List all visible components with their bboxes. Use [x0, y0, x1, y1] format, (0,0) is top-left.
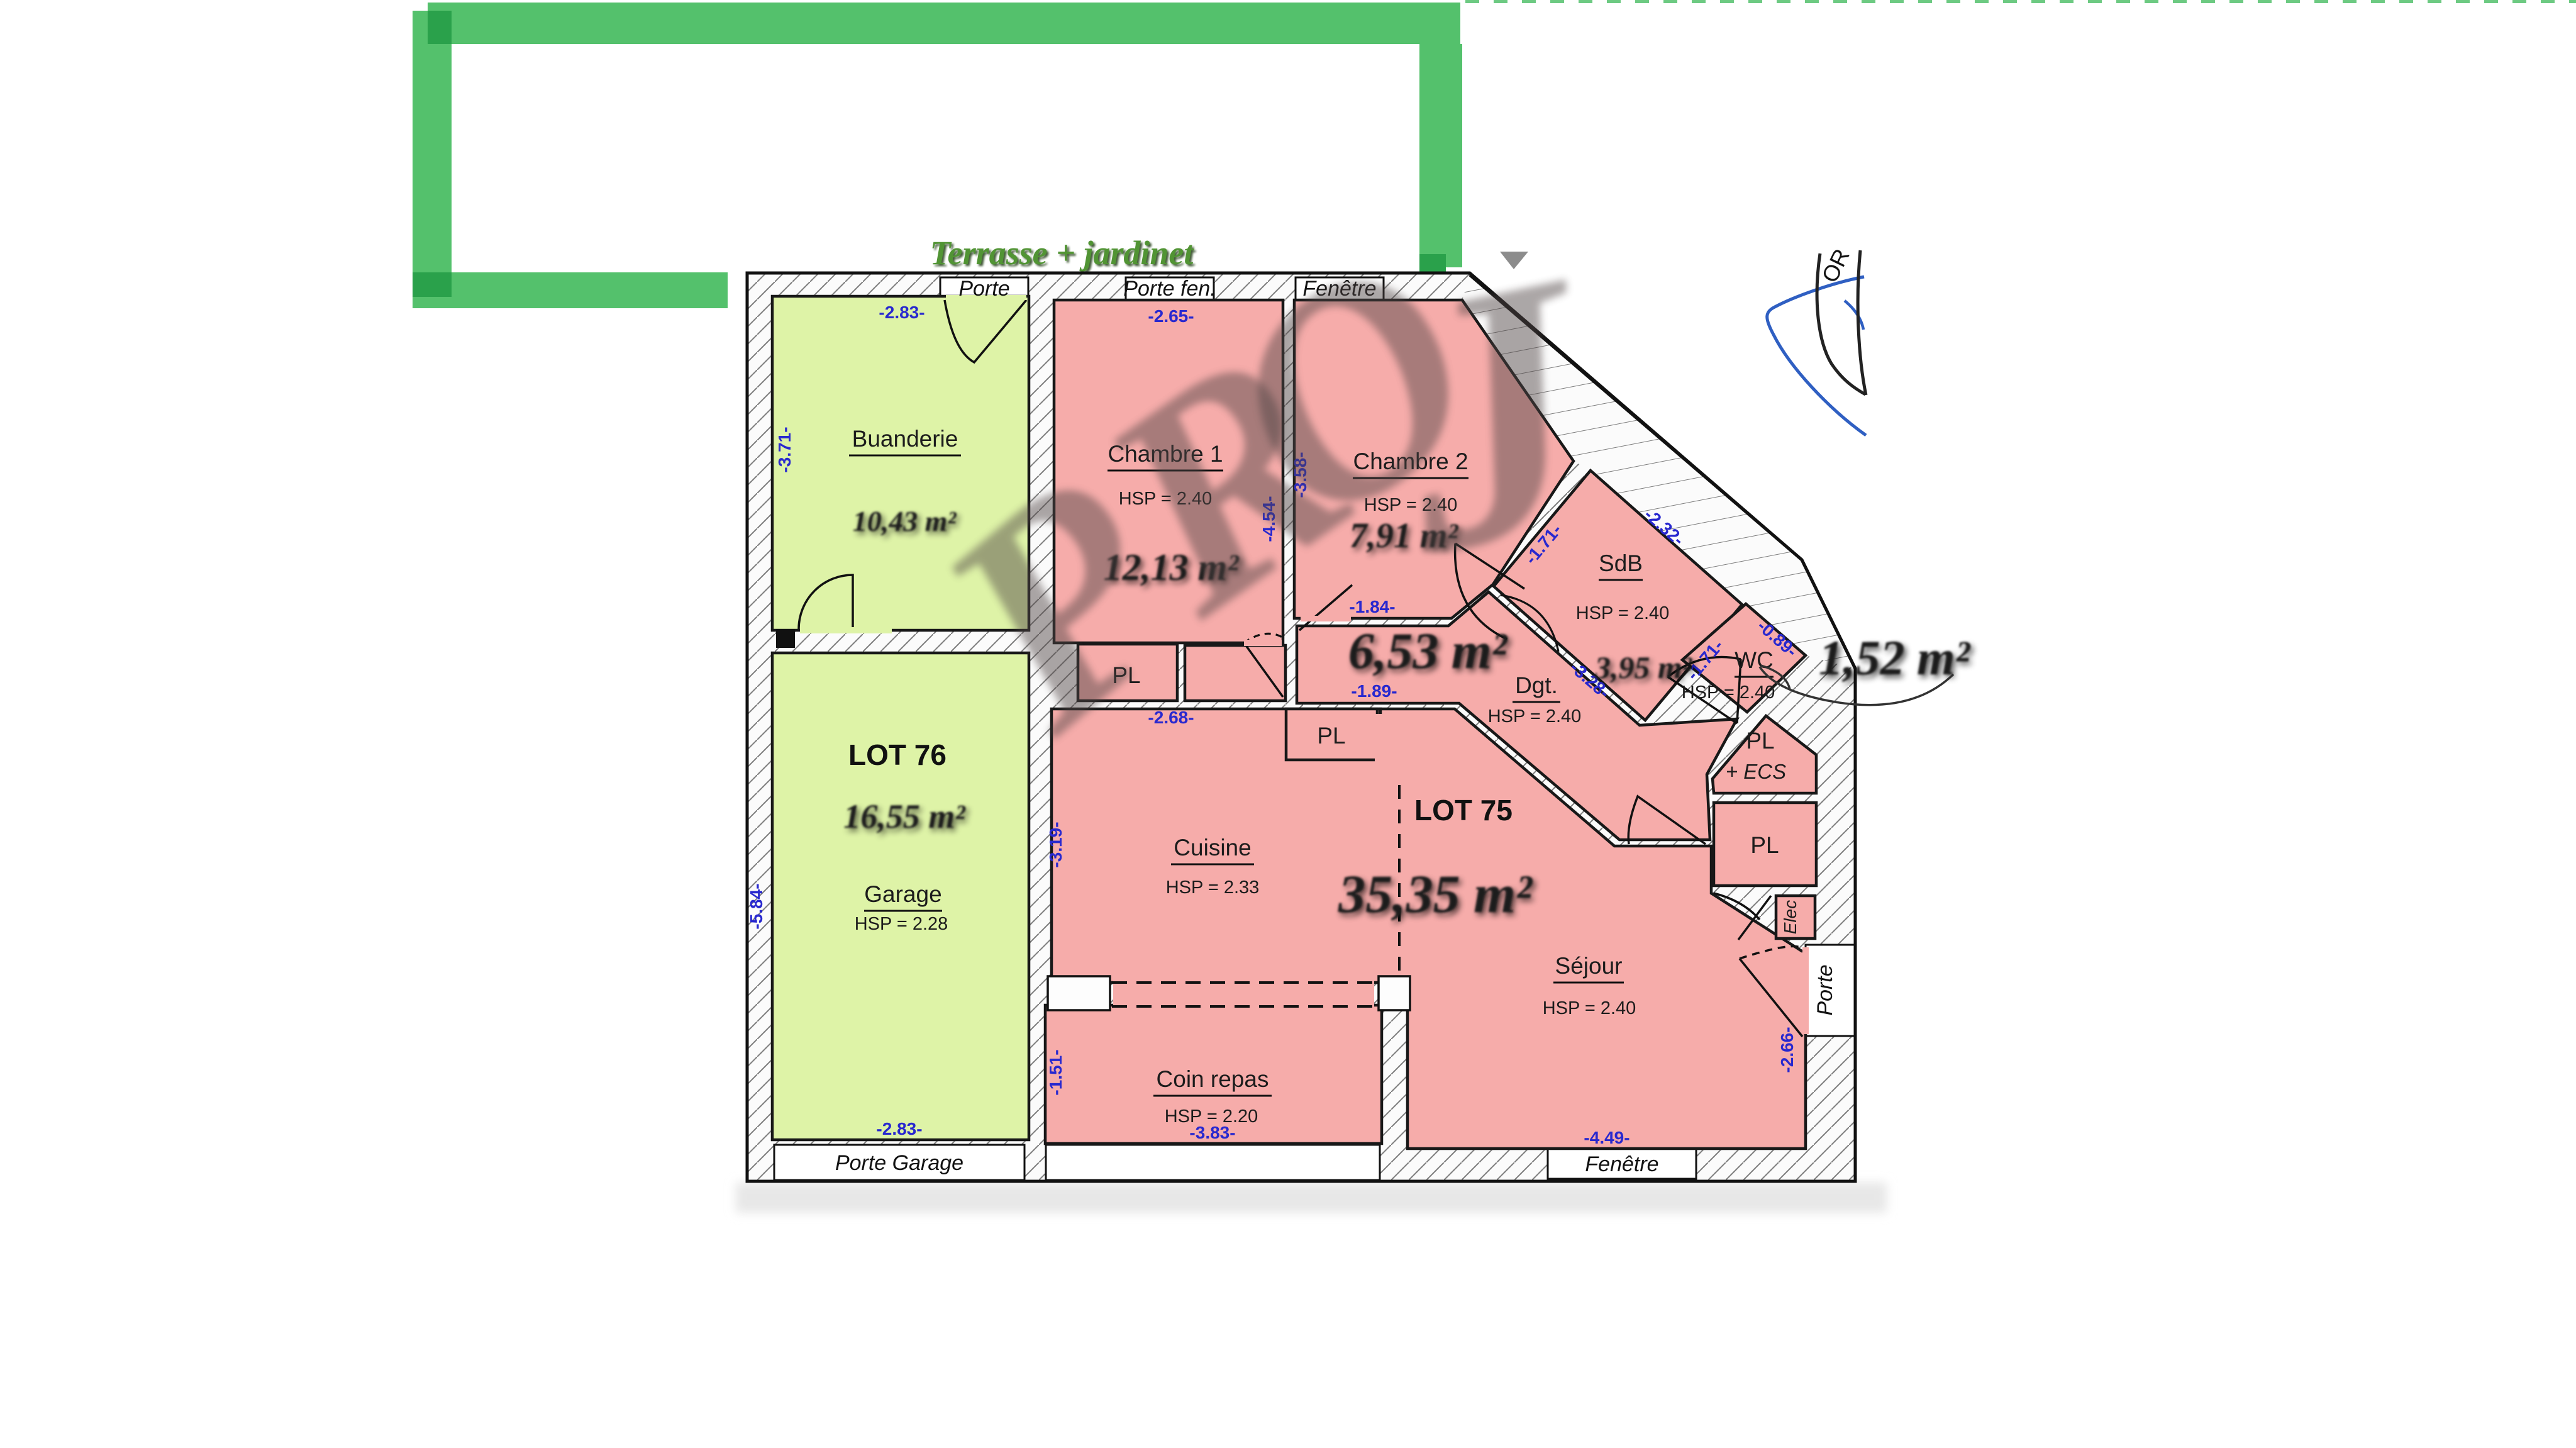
svg-text:-1.89-: -1.89- [1351, 681, 1397, 701]
svg-text:-4.49-: -4.49- [1584, 1128, 1629, 1147]
svg-text:LOT 75: LOT 75 [1414, 794, 1513, 827]
svg-text:16,55 m²: 16,55 m² [843, 798, 966, 835]
svg-text:-2.66-: -2.66- [1777, 1027, 1797, 1072]
svg-text:Terrasse + jardinet: Terrasse + jardinet [930, 234, 1195, 272]
svg-text:HSP = 2.40: HSP = 2.40 [1543, 998, 1636, 1018]
svg-text:Cuisine: Cuisine [1174, 835, 1251, 860]
svg-text:6,53 m²: 6,53 m² [1348, 622, 1508, 679]
svg-text:-3.83-: -3.83- [1189, 1123, 1235, 1142]
svg-text:Dgt.: Dgt. [1515, 672, 1558, 698]
svg-text:-3.71-: -3.71- [775, 426, 794, 472]
svg-text:Porte Garage: Porte Garage [835, 1151, 963, 1175]
svg-text:LOT 76: LOT 76 [848, 738, 947, 771]
svg-text:PL: PL [1750, 832, 1779, 858]
svg-text:Porte: Porte [958, 277, 1009, 301]
svg-text:HSP = 2.40: HSP = 2.40 [1682, 682, 1775, 703]
svg-text:-5.84-: -5.84- [747, 883, 766, 929]
svg-text:HSP = 2.40: HSP = 2.40 [1488, 706, 1582, 727]
svg-text:-1.84-: -1.84- [1349, 597, 1395, 616]
svg-text:-3.19-: -3.19- [1046, 821, 1065, 867]
svg-text:WC: WC [1735, 647, 1774, 673]
svg-text:Fenêtre: Fenêtre [1585, 1152, 1658, 1176]
svg-text:Garage: Garage [864, 881, 941, 907]
svg-text:3,95 m²: 3,95 m² [1594, 650, 1692, 685]
svg-text:Buanderie: Buanderie [852, 426, 958, 452]
svg-text:-1.51-: -1.51- [1046, 1049, 1065, 1095]
svg-text:Porte: Porte [1813, 964, 1837, 1015]
svg-text:-2.83-: -2.83- [879, 303, 924, 322]
svg-text:Séjour: Séjour [1555, 953, 1623, 979]
svg-text:PL: PL [1317, 723, 1345, 749]
svg-text:1,52 m²: 1,52 m² [1819, 630, 1971, 685]
svg-text:HSP = 2.33: HSP = 2.33 [1166, 877, 1260, 898]
svg-text:Coin repas: Coin repas [1157, 1066, 1269, 1092]
svg-text:HSP = 2.40: HSP = 2.40 [1576, 603, 1670, 623]
svg-text:35,35 m²: 35,35 m² [1338, 864, 1533, 924]
svg-text:-2.83-: -2.83- [876, 1119, 922, 1139]
svg-text:PL: PL [1746, 728, 1774, 754]
svg-text:Elec: Elec [1780, 900, 1800, 934]
svg-text:+ ECS: + ECS [1726, 760, 1786, 783]
svg-text:HSP = 2.28: HSP = 2.28 [855, 914, 948, 934]
